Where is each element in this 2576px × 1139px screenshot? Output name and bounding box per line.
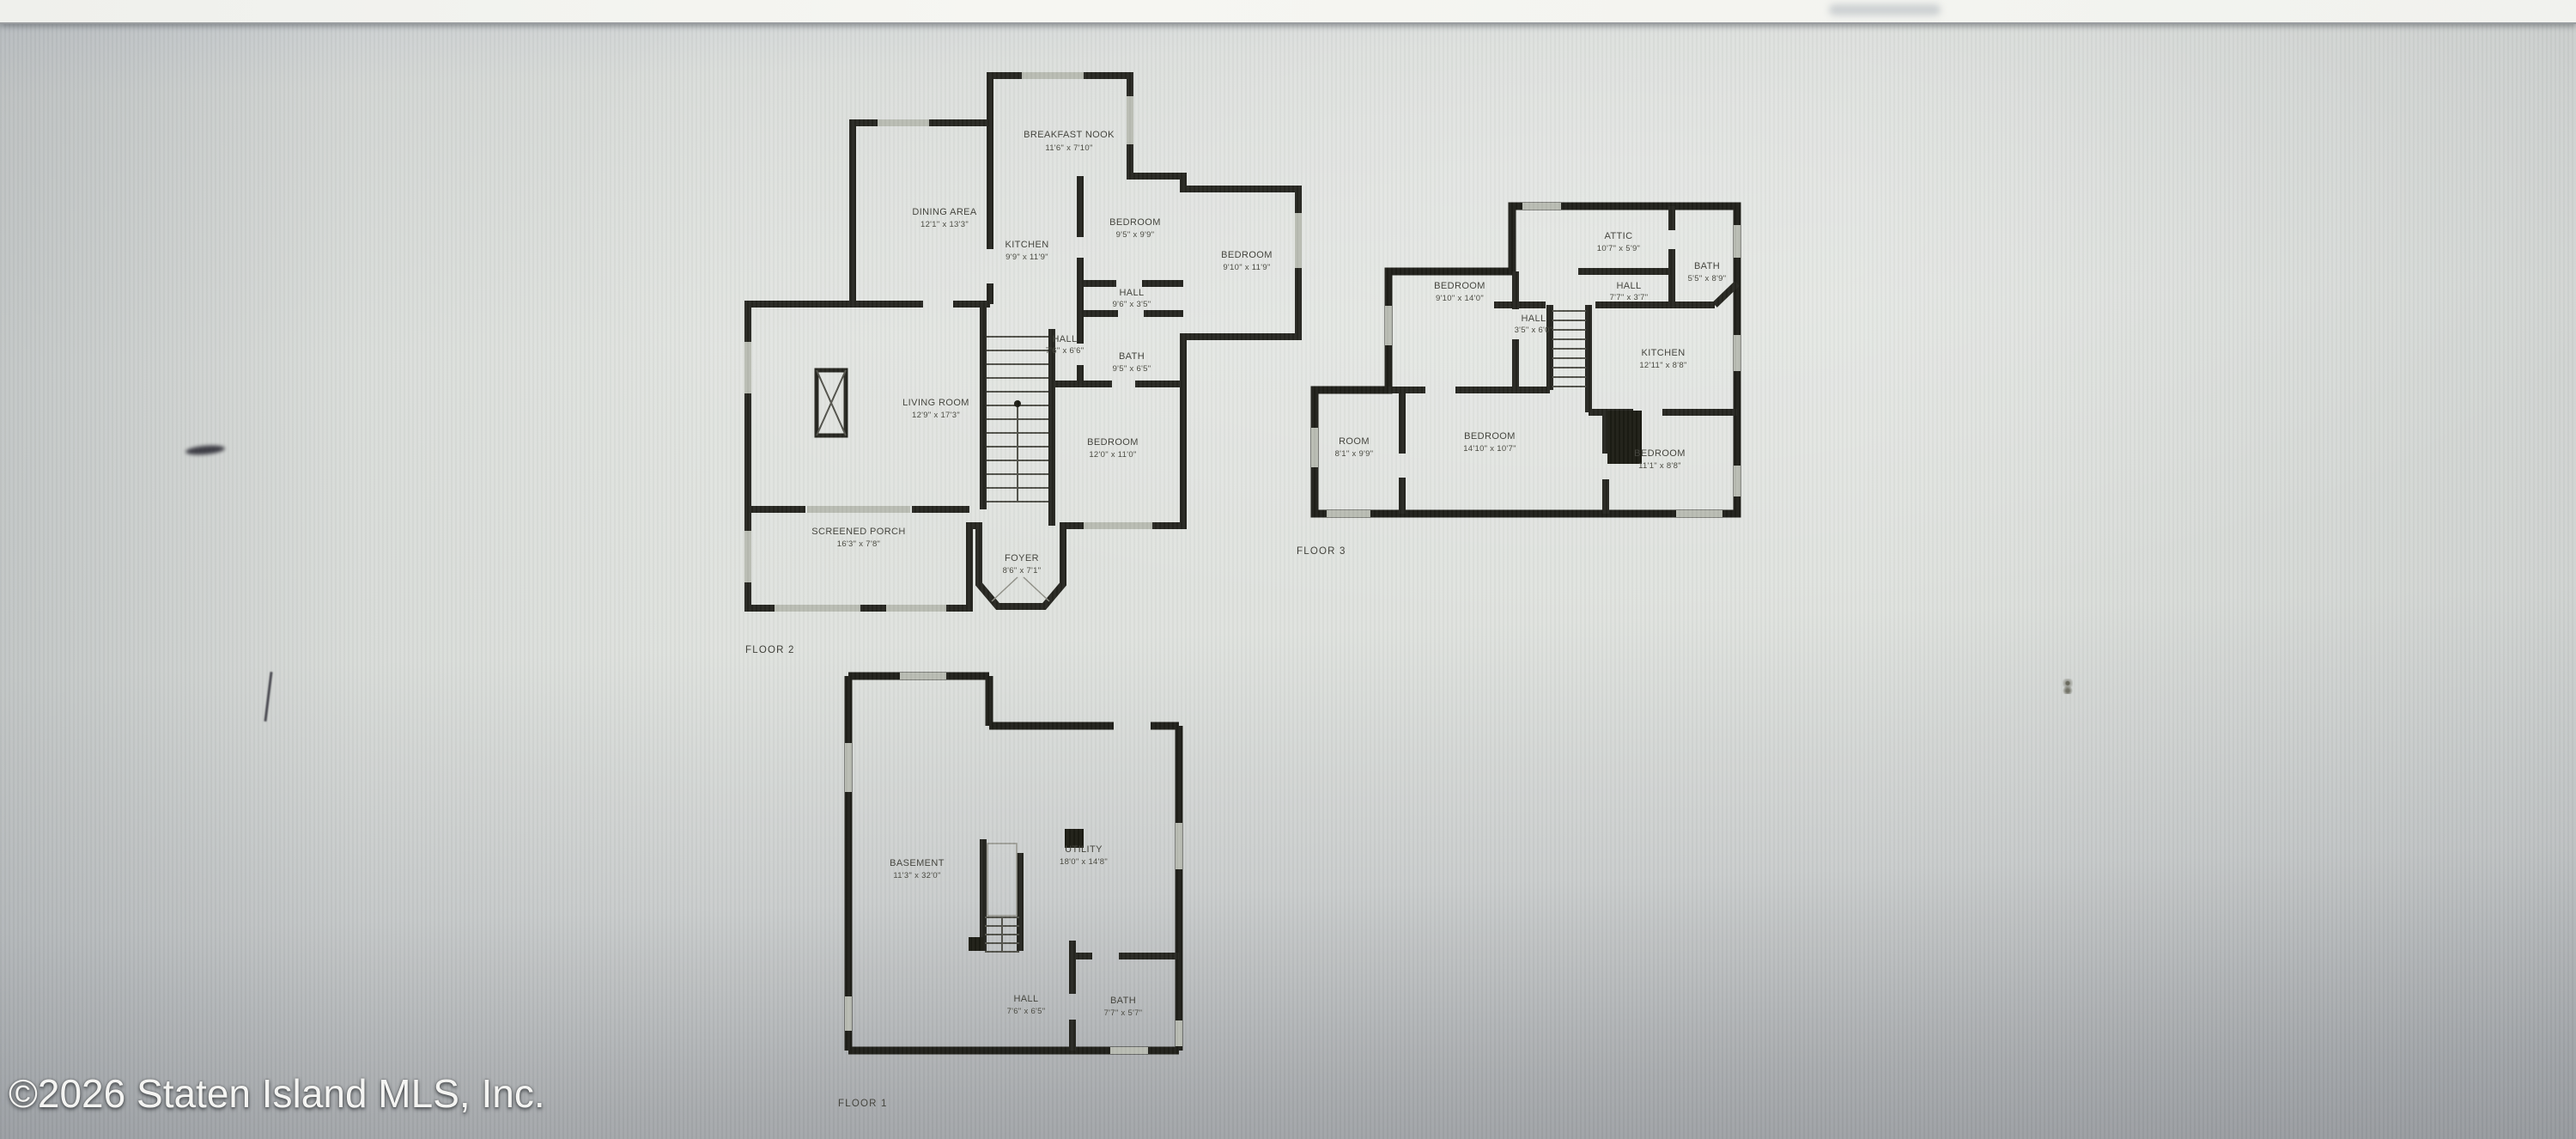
- top-band-smudge: [1829, 4, 1941, 15]
- speck-artifact: [2063, 679, 2073, 694]
- photographed-floor-plan-sheet: BREAKFAST NOOK 11'6" x 7'10" DINING AREA…: [0, 0, 2576, 1139]
- paper-texture-overlay: [0, 0, 2576, 1139]
- screen-top-glare-band: [0, 0, 2576, 24]
- copyright-watermark: ©2026 Staten Island MLS, Inc.: [9, 1070, 545, 1117]
